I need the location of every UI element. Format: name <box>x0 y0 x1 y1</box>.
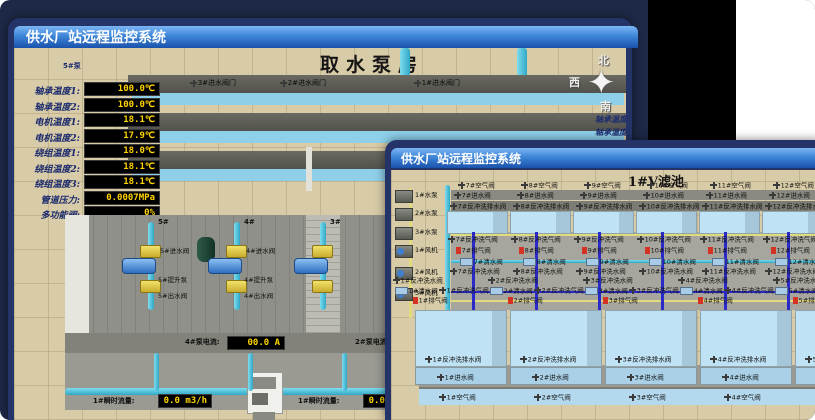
desktop: 供水厂站远程监控系统 取水泵房 3#进水阀门 2#进水阀门 1#进水阀门 ✦ 北… <box>0 0 815 420</box>
valve-icon <box>437 374 444 381</box>
exhaust-valve[interactable]: 4#排气阀 <box>698 297 733 305</box>
inlet-valve[interactable] <box>226 245 247 258</box>
lift-pump[interactable] <box>122 258 156 274</box>
back-window-title: 供水厂站远程监控系统 <box>26 27 166 47</box>
exhaust-valve[interactable]: 1#排气阀 <box>413 297 448 305</box>
outlet-valve-label: 4#出水阀 <box>244 293 273 300</box>
front-window-title: 供水厂站远程监控系统 <box>401 150 521 167</box>
pump-id-label: 3# <box>330 218 341 226</box>
inlet-valve-label: 5#进水阀 <box>160 248 189 255</box>
lift-pump[interactable] <box>294 258 328 274</box>
drain-valve[interactable]: 2#反冲洗排水阀 <box>520 356 576 364</box>
backwash-air-valve[interactable]: 1#反冲洗气阀 <box>439 287 489 295</box>
background-white-window <box>736 0 815 145</box>
valve-icon <box>722 374 729 381</box>
valve-icon <box>627 374 634 381</box>
lift-pump-label: 4#提升泵 <box>244 277 273 284</box>
inlet-valve[interactable] <box>312 245 333 258</box>
exhaust-valve-icon <box>793 297 798 304</box>
inlet-valve-label: 4#进水阀 <box>246 248 275 255</box>
back-window-titlebar[interactable]: 供水厂站远程监控系统 <box>14 26 638 48</box>
valve-icon <box>629 287 636 294</box>
clean-water-valve[interactable]: 2#清水阀 <box>490 287 533 295</box>
outlet-stub-pipe <box>342 353 347 391</box>
tank-icon <box>585 287 598 295</box>
inlet-channel-pool <box>795 367 815 385</box>
outlet-stub-pipe <box>154 353 159 391</box>
valve-icon <box>773 277 780 284</box>
pump-id-label: 4# <box>244 218 255 226</box>
lift-pump-label: 5#提升泵 <box>158 277 187 284</box>
valve-icon <box>520 356 527 363</box>
inlet-valve[interactable]: 4#进水阀 <box>722 374 759 382</box>
valve-icon <box>439 394 446 401</box>
tank-icon <box>680 287 693 295</box>
clean-water-valve[interactable]: 1#清水阀 <box>395 287 438 295</box>
drain-valve[interactable]: 5#反冲洗排水阀 <box>805 356 815 364</box>
exhaust-valve-icon <box>508 297 513 304</box>
background-black-window <box>648 0 736 145</box>
valve-icon <box>710 356 717 363</box>
backwash-air-valve[interactable]: 3#反冲洗气阀 <box>629 287 679 295</box>
valve-icon <box>724 394 731 401</box>
pump-id-label: 5# <box>158 218 169 226</box>
air-valve[interactable]: 2#空气阀 <box>534 394 571 402</box>
air-valve[interactable]: 1#空气阀 <box>439 394 476 402</box>
valve-icon <box>583 277 590 284</box>
backwash-water-valve[interactable]: 4#反冲洗水阀 <box>678 277 728 285</box>
exhaust-valve[interactable]: 2#排气阀 <box>508 297 543 305</box>
inlet-valve[interactable] <box>140 245 161 258</box>
clean-water-valve[interactable]: 3#清水阀 <box>585 287 628 295</box>
front-window: 供水厂站远程监控系统 1#V滤池 1#水泵2#水泵3#水泵1#风机2#风机3#风… <box>385 140 815 420</box>
valve-icon <box>532 374 539 381</box>
inlet-valve[interactable]: 1#进水阀 <box>437 374 474 382</box>
exhaust-valve-icon <box>698 297 703 304</box>
valve-icon <box>425 356 432 363</box>
valve-icon <box>488 277 495 284</box>
air-valve[interactable]: 3#空气阀 <box>629 394 666 402</box>
backwash-water-valve[interactable]: 5#反冲洗水阀 <box>773 277 815 285</box>
drain-valve[interactable]: 3#反冲洗排水阀 <box>615 356 671 364</box>
exhaust-valve-icon <box>413 297 418 304</box>
drain-valve[interactable]: 1#反冲洗排水阀 <box>425 356 481 364</box>
valve-icon <box>678 277 685 284</box>
tank-icon <box>490 287 503 295</box>
lift-pump[interactable] <box>208 258 242 274</box>
backwash-air-valve[interactable]: 4#反冲洗气阀 <box>724 287 774 295</box>
tank-icon <box>775 287 788 295</box>
outlet-valve-label: 5#出水阀 <box>158 293 187 300</box>
valve-icon <box>534 287 541 294</box>
exhaust-valve[interactable]: 5#排气阀 <box>793 297 815 305</box>
valve-icon <box>534 394 541 401</box>
valve-icon <box>393 277 400 284</box>
front-window-titlebar[interactable]: 供水厂站远程监控系统 <box>391 148 815 168</box>
air-valve[interactable]: 4#空气阀 <box>724 394 761 402</box>
drain-valve[interactable]: 4#反冲洗排水阀 <box>710 356 766 364</box>
exhaust-valve[interactable]: 3#排气阀 <box>603 297 638 305</box>
backwash-water-valve[interactable]: 1#反冲洗水阀 <box>393 277 443 285</box>
exhaust-valve-icon <box>603 297 608 304</box>
outlet-valve[interactable] <box>312 280 333 293</box>
bottom-filter-cells: 1#反冲洗水阀 1#清水阀 1#反冲洗气阀 1#排气阀 1#反冲洗排水阀 1#进… <box>391 170 815 420</box>
valve-icon <box>724 287 731 294</box>
filter-scene: 1#V滤池 1#水泵2#水泵3#水泵1#风机2#风机3#风机 7#空气阀 7#进… <box>391 170 815 420</box>
backwash-air-valve[interactable]: 2#反冲洗气阀 <box>534 287 584 295</box>
inlet-valve[interactable]: 3#进水阀 <box>627 374 664 382</box>
backwash-water-valve[interactable]: 3#反冲洗水阀 <box>583 277 633 285</box>
valve-icon <box>805 356 812 363</box>
valve-icon <box>615 356 622 363</box>
tank-icon <box>395 287 408 295</box>
valve-icon <box>629 394 636 401</box>
outlet-stub-pipe <box>248 353 253 391</box>
inlet-valve[interactable]: 2#进水阀 <box>532 374 569 382</box>
backwash-water-valve[interactable]: 2#反冲洗水阀 <box>488 277 538 285</box>
clean-water-valve[interactable]: 4#清水阀 <box>680 287 723 295</box>
valve-icon <box>439 287 446 294</box>
clean-water-valve[interactable]: 5#清水阀 <box>775 287 815 295</box>
